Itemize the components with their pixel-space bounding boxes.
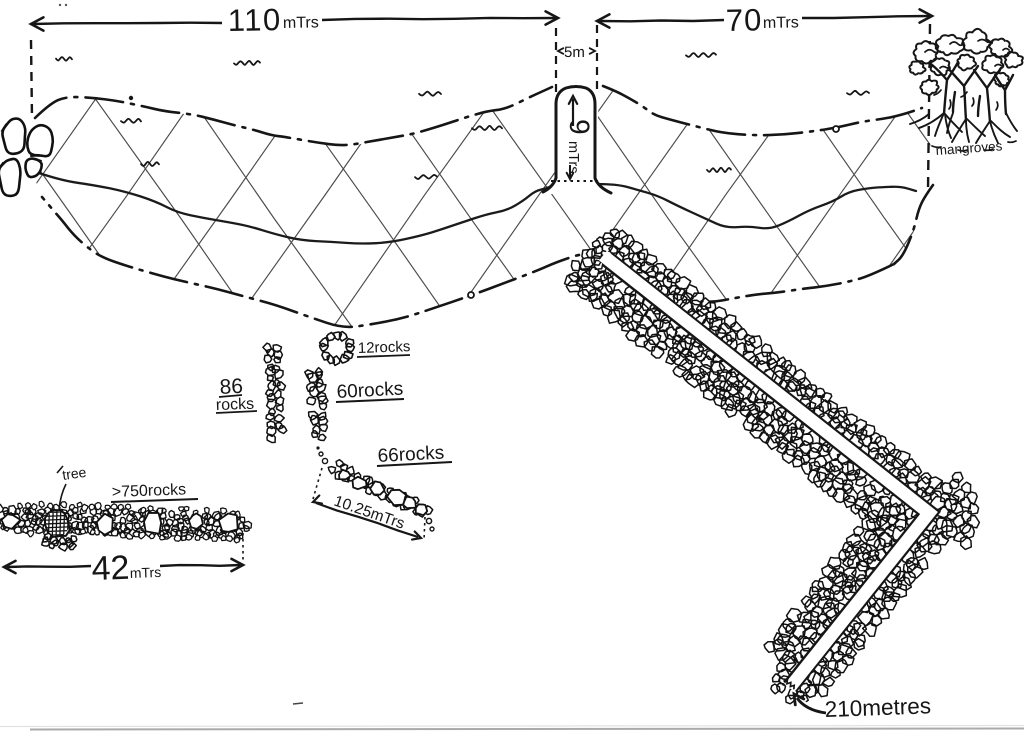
svg-text:70: 70 bbox=[726, 2, 763, 38]
svg-text:110: 110 bbox=[228, 2, 283, 38]
svg-text:5m: 5m bbox=[564, 44, 585, 61]
svg-text:tree: tree bbox=[61, 464, 87, 483]
svg-text:9: 9 bbox=[564, 119, 595, 135]
svg-text:12rocks: 12rocks bbox=[358, 338, 411, 357]
svg-text:mTrs: mTrs bbox=[283, 14, 319, 32]
svg-text:mTrs: mTrs bbox=[763, 14, 799, 32]
svg-text:42: 42 bbox=[91, 549, 130, 588]
svg-text:210metres: 210metres bbox=[824, 693, 931, 722]
svg-text:mTrs: mTrs bbox=[565, 141, 581, 173]
svg-text:>750rocks: >750rocks bbox=[112, 481, 187, 501]
svg-text:mTrs: mTrs bbox=[130, 564, 162, 581]
